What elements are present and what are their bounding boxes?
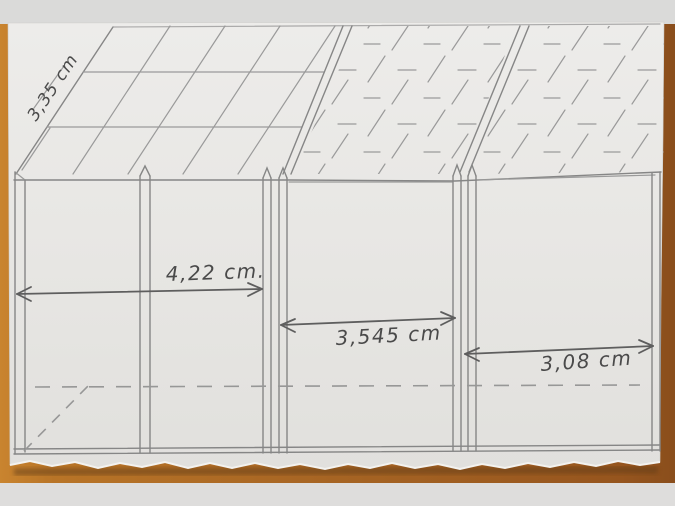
label-left-width: 4,22 cm. <box>165 259 266 286</box>
pencil-sketch: 3,35 cm 4,22 cm. 3,545 cm 3,08 cm <box>0 0 675 506</box>
paper-shadow <box>14 470 658 472</box>
photo-of-sketch: 3,35 cm 4,22 cm. 3,545 cm 3,08 cm <box>0 0 675 506</box>
